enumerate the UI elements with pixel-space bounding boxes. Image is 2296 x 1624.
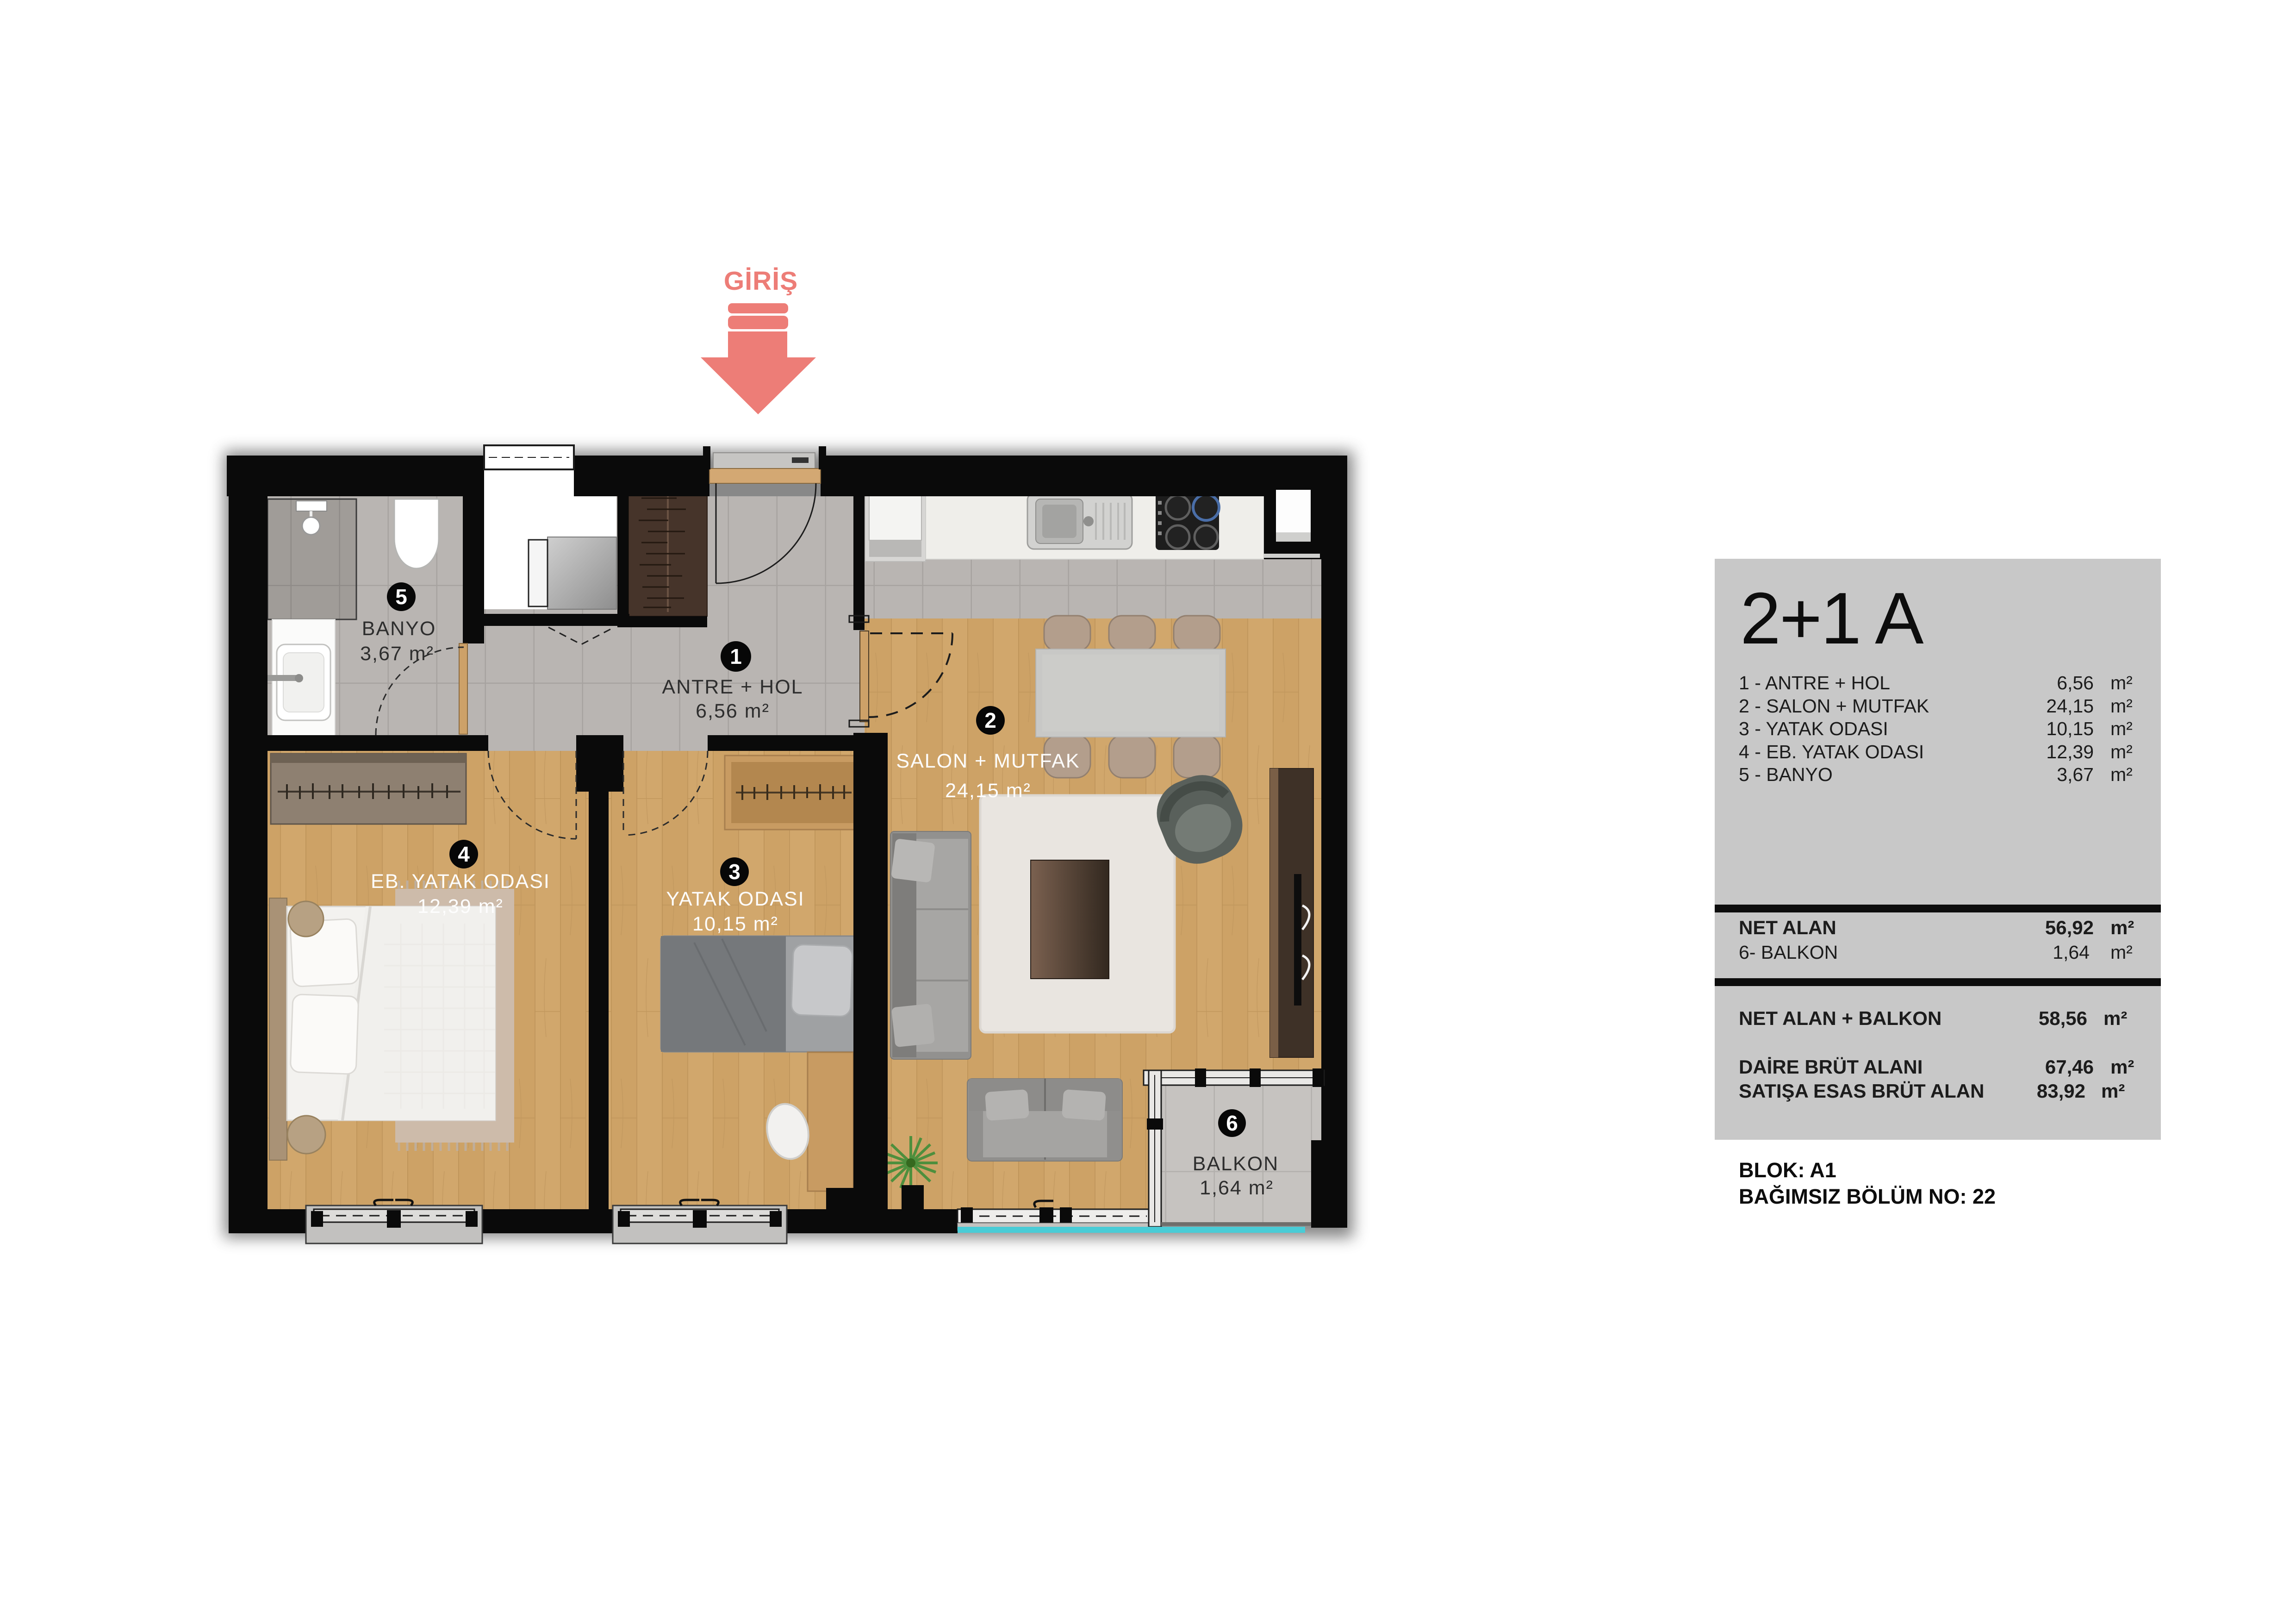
svg-text:1,64 m²: 1,64 m²: [1200, 1177, 1274, 1199]
svg-text:5: 5: [395, 585, 407, 609]
svg-text:4 - EB. YATAK ODASI: 4 - EB. YATAK ODASI: [1739, 741, 1924, 762]
svg-text:YATAK ODASI: YATAK ODASI: [666, 888, 804, 910]
svg-text:BANYO: BANYO: [362, 618, 436, 640]
svg-text:5 - BANYO: 5 - BANYO: [1739, 764, 1833, 785]
svg-text:12,39: 12,39: [2046, 741, 2094, 762]
svg-text:m²: m²: [2110, 741, 2133, 762]
svg-text:m²: m²: [2110, 917, 2134, 938]
svg-text:3,67: 3,67: [2057, 764, 2094, 785]
svg-text:SATIŞA ESAS BRÜT ALAN: SATIŞA ESAS BRÜT ALAN: [1739, 1080, 1984, 1102]
svg-text:ANTRE + HOL: ANTRE + HOL: [662, 676, 803, 698]
svg-text:1 - ANTRE + HOL: 1 - ANTRE + HOL: [1739, 672, 1890, 693]
svg-text:m²: m²: [2110, 695, 2133, 717]
svg-text:10,15 m²: 10,15 m²: [692, 913, 778, 935]
svg-text:6- BALKON: 6- BALKON: [1739, 942, 1838, 963]
svg-text:1,64: 1,64: [2053, 942, 2090, 963]
svg-text:GİRİŞ: GİRİŞ: [724, 266, 798, 296]
svg-text:NET ALAN + BALKON: NET ALAN + BALKON: [1739, 1007, 1941, 1029]
svg-text:EB. YATAK ODASI: EB. YATAK ODASI: [371, 870, 550, 893]
svg-text:2 - SALON + MUTFAK: 2 - SALON + MUTFAK: [1739, 695, 1929, 717]
svg-text:12,39 m²: 12,39 m²: [417, 895, 504, 918]
svg-text:67,46: 67,46: [2045, 1056, 2094, 1078]
svg-text:58,56: 58,56: [2039, 1007, 2087, 1029]
svg-text:10,15: 10,15: [2046, 718, 2094, 739]
svg-text:1: 1: [730, 644, 742, 668]
svg-text:3: 3: [728, 860, 740, 884]
svg-text:m²: m²: [2110, 764, 2133, 785]
svg-text:24,15: 24,15: [2046, 695, 2094, 717]
svg-text:m²: m²: [2103, 1007, 2127, 1029]
svg-text:m²: m²: [2110, 718, 2133, 739]
svg-text:m²: m²: [2110, 1056, 2134, 1078]
svg-text:m²: m²: [2110, 672, 2133, 693]
svg-text:24,15 m²: 24,15 m²: [945, 780, 1031, 802]
svg-text:m²: m²: [2110, 942, 2133, 963]
svg-text:6,56 m²: 6,56 m²: [696, 700, 770, 722]
svg-text:3,67 m²: 3,67 m²: [360, 643, 434, 665]
svg-text:BAĞIMSIZ BÖLÜM NO: 22: BAĞIMSIZ BÖLÜM NO: 22: [1739, 1185, 1996, 1208]
svg-text:83,92: 83,92: [2037, 1080, 2085, 1102]
svg-text:m²: m²: [2101, 1080, 2125, 1102]
svg-text:2: 2: [984, 708, 996, 732]
svg-text:6,56: 6,56: [2057, 672, 2094, 693]
svg-text:NET ALAN: NET ALAN: [1739, 917, 1836, 938]
svg-text:BLOK: A1: BLOK: A1: [1739, 1158, 1836, 1182]
svg-text:BALKON: BALKON: [1193, 1153, 1279, 1175]
svg-text:3 - YATAK ODASI: 3 - YATAK ODASI: [1739, 718, 1888, 739]
svg-text:4: 4: [458, 842, 470, 866]
svg-text:2+1 A: 2+1 A: [1740, 578, 1924, 659]
svg-text:56,92: 56,92: [2045, 917, 2094, 938]
svg-text:SALON + MUTFAK: SALON + MUTFAK: [896, 750, 1080, 772]
svg-text:DAİRE BRÜT ALANI: DAİRE BRÜT ALANI: [1739, 1056, 1923, 1078]
svg-text:6: 6: [1226, 1111, 1238, 1135]
